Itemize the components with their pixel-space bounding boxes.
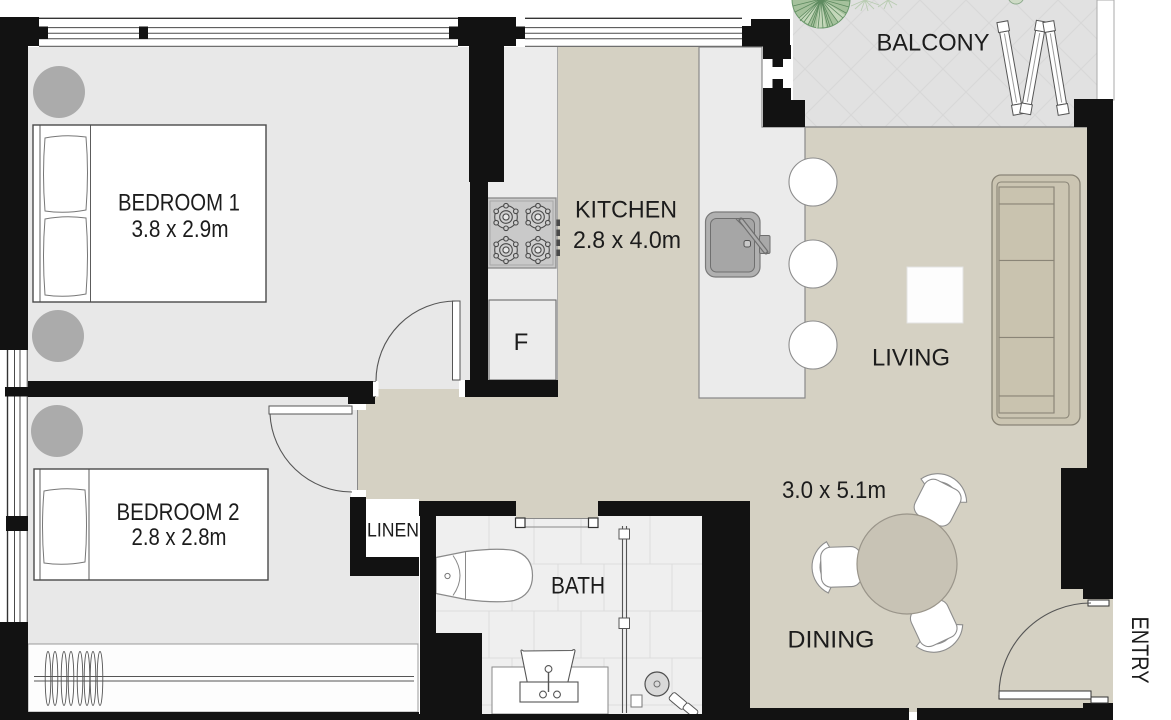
svg-text:3.0 x 5.1m: 3.0 x 5.1m xyxy=(782,477,886,504)
svg-text:BALCONY: BALCONY xyxy=(877,30,990,57)
svg-text:2.8 x 2.8m: 2.8 x 2.8m xyxy=(132,524,227,551)
svg-text:KITCHEN: KITCHEN xyxy=(575,197,677,224)
svg-text:LINEN: LINEN xyxy=(367,521,419,542)
svg-text:DINING: DINING xyxy=(788,627,875,654)
svg-text:3.8 x 2.9m: 3.8 x 2.9m xyxy=(132,216,229,243)
svg-text:2.8 x 4.0m: 2.8 x 4.0m xyxy=(573,227,681,254)
svg-text:LIVING: LIVING xyxy=(872,345,950,372)
svg-text:BATH: BATH xyxy=(551,573,605,600)
svg-text:BEDROOM 2: BEDROOM 2 xyxy=(117,499,240,526)
svg-text:F: F xyxy=(514,329,529,356)
svg-text:BEDROOM 1: BEDROOM 1 xyxy=(118,190,240,217)
svg-text:ENTRY: ENTRY xyxy=(1126,617,1153,684)
